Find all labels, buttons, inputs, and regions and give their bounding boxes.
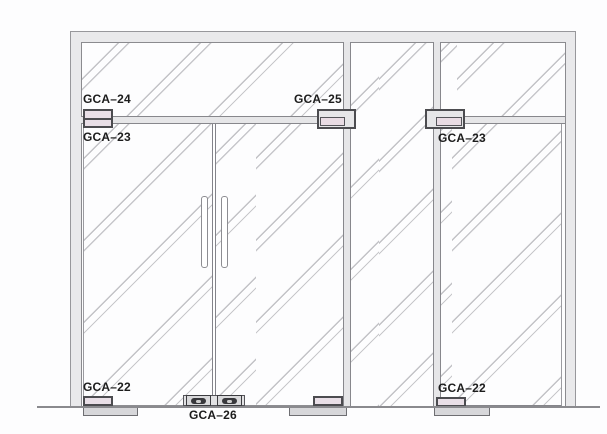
lock-pill-icon — [222, 398, 237, 404]
glass-panel-transom-right — [439, 43, 565, 117]
glass-door-left — [83, 122, 212, 406]
fitting-gca24-gca23 — [83, 109, 113, 128]
door-meeting-stiles — [212, 122, 216, 406]
fitting-bottom-door-right — [313, 396, 343, 406]
label-gca22-left: GCA–22 — [83, 381, 131, 394]
label-gca23-right: GCA–23 — [438, 132, 486, 145]
lock-dot-icon — [227, 400, 232, 403]
fitting-gca23-right-strip — [436, 117, 462, 126]
floor-line — [37, 406, 600, 408]
fitting-gca25-strip — [320, 117, 345, 126]
fitting-gca25 — [317, 109, 356, 129]
fitting-gca23-right — [425, 109, 465, 129]
transom-rail-left — [81, 116, 343, 124]
label-gca23-left: GCA–23 — [83, 131, 131, 144]
door-handle-right — [221, 196, 228, 268]
glass-door-right — [216, 122, 343, 406]
gca26-lock-right — [217, 395, 242, 406]
label-gca24: GCA–24 — [83, 93, 131, 106]
glass-door-side — [440, 122, 562, 406]
fitting-divider-line — [84, 118, 112, 120]
mullion-left — [343, 42, 351, 406]
label-gca25: GCA–25 — [294, 93, 342, 106]
fitting-gca22-left — [83, 396, 113, 406]
door-assembly-diagram: GCA–24 GCA–23 GCA–25 GCA–23 GCA–22 GCA–2… — [0, 0, 607, 434]
label-gca22-right: GCA–22 — [438, 382, 486, 395]
door-handle-left — [201, 196, 208, 268]
glass-panel-middle-fixed — [349, 43, 433, 406]
lock-pill-icon — [191, 398, 206, 404]
lock-dot-icon — [196, 400, 201, 403]
mullion-right — [433, 42, 441, 406]
gca26-lock-left — [186, 395, 211, 406]
label-gca26: GCA–26 — [189, 409, 237, 422]
